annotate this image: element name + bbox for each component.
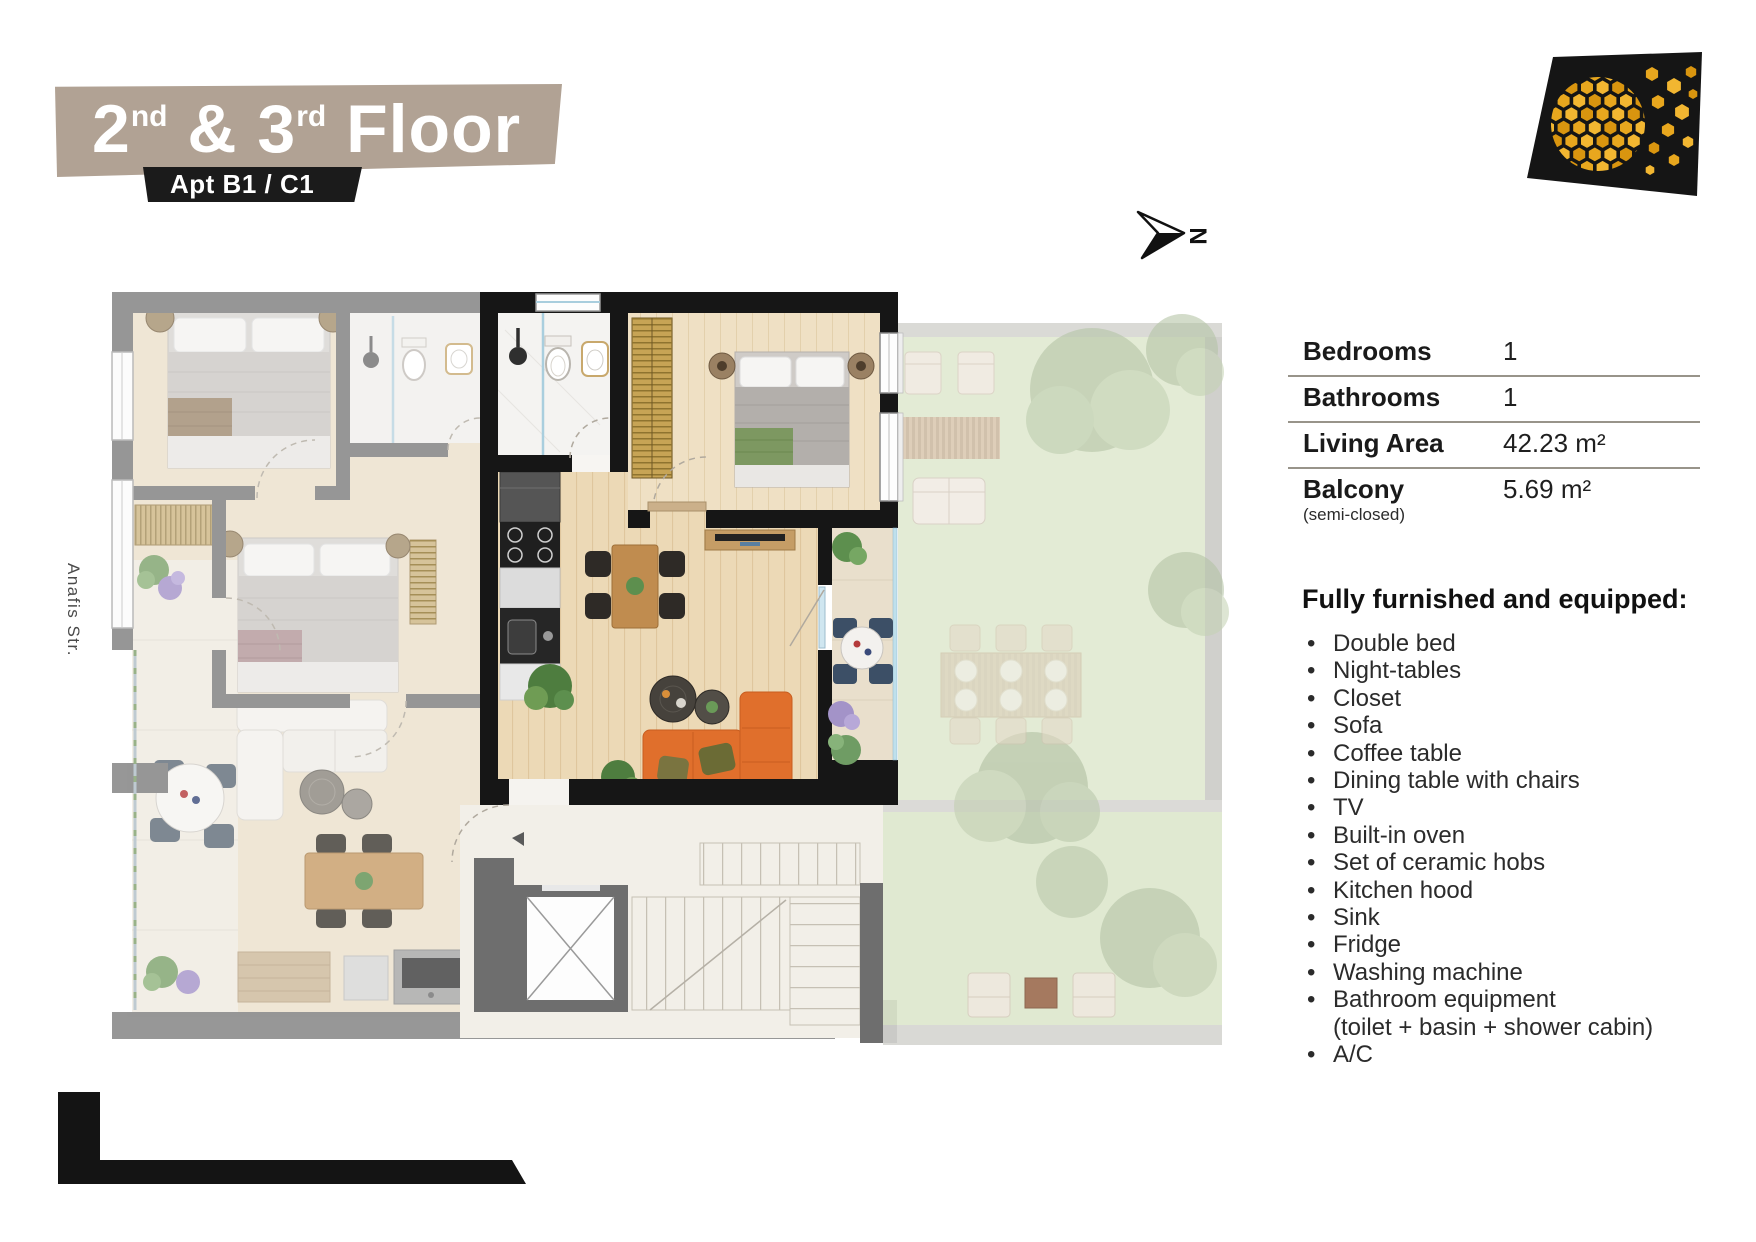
garden-dining [941, 625, 1081, 744]
coffee-table [342, 789, 372, 819]
spec-row: Living Area42.23 m² [1288, 423, 1700, 469]
feature-item-text: Kitchen hood [1333, 877, 1473, 904]
bullet-icon: • [1295, 904, 1333, 931]
stairwell [460, 805, 897, 1043]
spec-label: Living Area [1288, 429, 1503, 458]
spec-label: Bathrooms [1288, 383, 1503, 412]
bathroom-floor [498, 313, 610, 455]
apartment-banner: Apt B1 / C1 [143, 167, 362, 202]
feature-item: •Coffee table [1295, 740, 1705, 767]
bullet-icon: • [1295, 822, 1333, 849]
bench [238, 952, 330, 1002]
brand-logo [1527, 52, 1702, 196]
tv-icon [715, 534, 785, 541]
elevator [513, 885, 628, 1012]
corner-accent [58, 1092, 526, 1184]
specs-table: Bedrooms1Bathrooms1Living Area42.23 m²Ba… [1288, 331, 1700, 533]
street-label: Anafis Str. [64, 563, 83, 657]
spec-value: 5.69 m² [1503, 475, 1591, 504]
bullet-icon: • [1295, 740, 1333, 767]
tv-console [705, 530, 795, 550]
bullet-icon: • [1295, 931, 1333, 958]
bullet-icon: • [1295, 986, 1333, 1041]
features-list: •Double bed•Night-tables•Closet•Sofa•Cof… [1295, 630, 1705, 1069]
feature-item: •Set of ceramic hobs [1295, 849, 1705, 876]
spec-label: Bedrooms [1288, 337, 1503, 366]
spec-label-text: Bedrooms [1303, 337, 1503, 366]
feature-item: •TV [1295, 794, 1705, 821]
bullet-icon: • [1295, 794, 1333, 821]
feature-item-text: Night-tables [1333, 657, 1461, 684]
spec-label: Balcony(semi-closed) [1288, 475, 1503, 524]
shower-icon [509, 347, 527, 365]
toilet-icon [403, 350, 425, 380]
feature-item: •Closet [1295, 685, 1705, 712]
feature-item-text: Set of ceramic hobs [1333, 849, 1545, 876]
toilet-icon [546, 348, 570, 380]
spec-value: 1 [1503, 383, 1517, 412]
feature-item-text: Built-in oven [1333, 822, 1465, 849]
feature-item-text: Coffee table [1333, 740, 1462, 767]
feature-item-text: Dining table with chairs [1333, 767, 1580, 794]
features-panel: Fully furnished and equipped: •Double be… [1295, 584, 1705, 1069]
feature-item-text: A/C [1333, 1041, 1373, 1068]
feature-item: •Washing machine [1295, 959, 1705, 986]
garden-sofa [913, 478, 985, 524]
feature-item-text: Washing machine [1333, 959, 1523, 986]
shower-icon [363, 352, 379, 368]
basin-icon [446, 344, 472, 374]
hob-icon [500, 522, 560, 568]
feature-item-text: Sink [1333, 904, 1380, 931]
feature-item-subtext: (toilet + basin + shower cabin) [1333, 1014, 1705, 1041]
bullet-icon: • [1295, 1041, 1333, 1068]
feature-item: •Double bed [1295, 630, 1705, 657]
bullet-icon: • [1295, 630, 1333, 657]
feature-item: •Bathroom equipment(toilet + basin + sho… [1295, 986, 1705, 1041]
garden [883, 314, 1229, 1045]
coffee-table [300, 770, 344, 814]
feature-item: •A/C [1295, 1041, 1705, 1068]
spec-label-text: Bathrooms [1303, 383, 1503, 412]
basin-icon [582, 342, 608, 376]
spec-row: Bathrooms1 [1288, 377, 1700, 423]
adjacent-bedroom-2 [217, 531, 410, 692]
north-arrow-icon: N [1138, 212, 1211, 258]
bullet-icon: • [1295, 849, 1333, 876]
feature-item: •Sink [1295, 904, 1705, 931]
adjacent-bottom-furniture [238, 950, 468, 1004]
window [112, 352, 133, 628]
feature-item: •Fridge [1295, 931, 1705, 958]
features-heading: Fully furnished and equipped: [1302, 584, 1705, 615]
floor-title-banner: 2nd & 3rd Floor [55, 84, 562, 177]
stairs [632, 897, 790, 1010]
adjacent-bedroom-1 [146, 304, 347, 468]
spec-row: Balcony(semi-closed)5.69 m² [1288, 469, 1700, 533]
spec-value: 42.23 m² [1503, 429, 1606, 458]
feature-item-text: Bathroom equipment [1333, 986, 1556, 1013]
spec-row: Bedrooms1 [1288, 331, 1700, 377]
feature-item: •Sofa [1295, 712, 1705, 739]
bullet-icon: • [1295, 712, 1333, 739]
door-leaf [648, 502, 706, 511]
bullet-icon: • [1295, 877, 1333, 904]
spec-value: 1 [1503, 337, 1517, 366]
feature-item-text: Closet [1333, 685, 1401, 712]
apartment-label: Apt B1 / C1 [170, 169, 314, 199]
feature-item-text: Sofa [1333, 712, 1382, 739]
north-label: N [1184, 227, 1211, 244]
adjacent-sofa [237, 700, 387, 820]
bullet-icon: • [1295, 685, 1333, 712]
feature-item-text: Double bed [1333, 630, 1456, 657]
feature-item: •Built-in oven [1295, 822, 1705, 849]
stairs [790, 897, 860, 1025]
feature-item-text: TV [1333, 794, 1364, 821]
feature-item: •Kitchen hood [1295, 877, 1705, 904]
feature-item: •Night-tables [1295, 657, 1705, 684]
fridge-icon [500, 472, 560, 522]
stairs [700, 843, 860, 885]
spec-label-text: Living Area [1303, 429, 1503, 458]
balcony [828, 528, 897, 765]
bullet-icon: • [1295, 657, 1333, 684]
floor-title: 2nd & 3rd Floor [92, 91, 521, 167]
feature-item-text: Fridge [1333, 931, 1401, 958]
bullet-icon: • [1295, 959, 1333, 986]
bullet-icon: • [1295, 767, 1333, 794]
spec-sublabel: (semi-closed) [1303, 505, 1503, 524]
spec-label-text: Balcony [1303, 475, 1503, 504]
feature-item: •Dining table with chairs [1295, 767, 1705, 794]
night-table [386, 534, 410, 558]
balcony-glass [893, 528, 897, 760]
